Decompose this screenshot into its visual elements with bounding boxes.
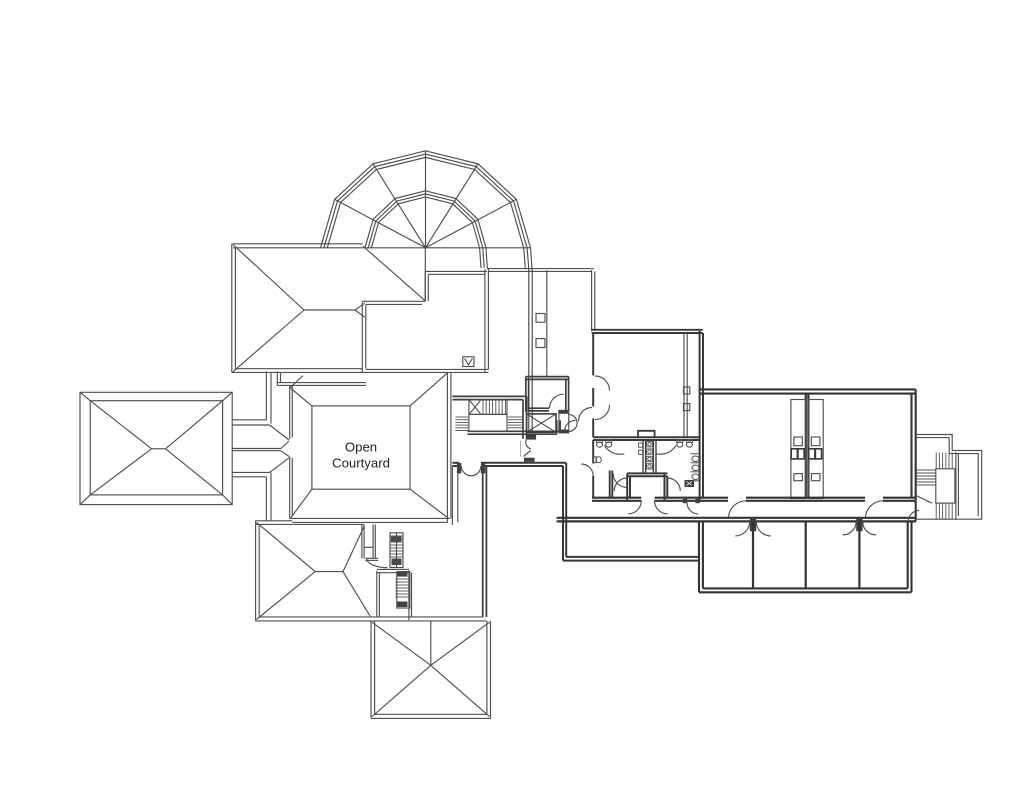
svg-text:Courtyard: Courtyard [332,456,390,471]
svg-text:Open: Open [345,440,377,455]
